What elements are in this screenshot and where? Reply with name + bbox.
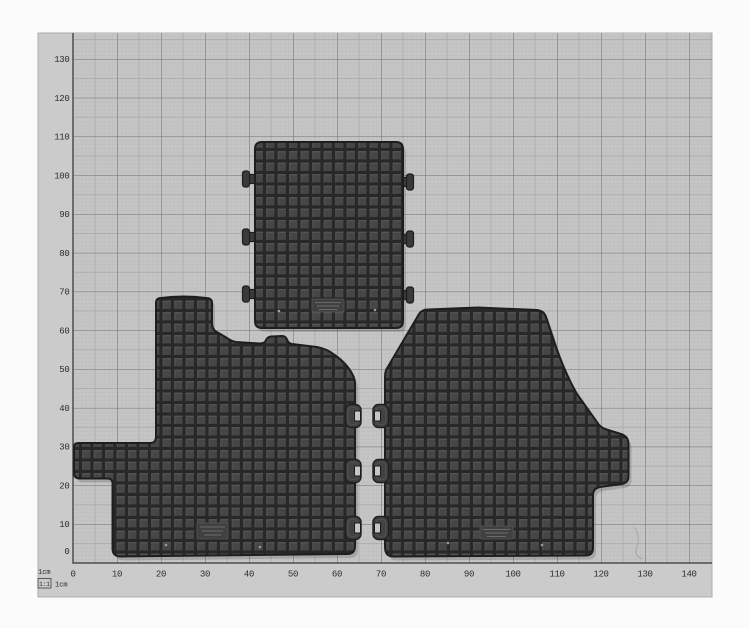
x-tick-label-110: 110 [549,570,564,580]
x-tick-label-10: 10 [112,570,122,580]
mold-dot [447,542,450,545]
y-tick-label-60: 60 [59,326,69,336]
x-tick-label-80: 80 [420,570,430,580]
mold-dot [165,544,168,547]
mold-dot [278,310,281,313]
y-tick-label-80: 80 [59,249,69,259]
passenger-mat-label-plate [480,526,513,539]
scene: 0102030405060708090100110120130140 01020… [0,0,750,628]
x-tick-label-40: 40 [244,570,254,580]
y-tick-label-50: 50 [59,365,69,375]
y-tick-label-10: 10 [59,520,69,530]
y-tick-label-70: 70 [59,288,69,298]
passenger-mat-connector-hooks [373,405,389,540]
mold-dot [259,546,262,549]
x-tick-label-20: 20 [156,570,166,580]
x-tick-label-30: 30 [200,570,210,580]
y-tick-label-40: 40 [59,404,69,414]
driver-mat-connector-hooks [346,405,362,540]
y-tick-label-90: 90 [59,210,69,220]
y-tick-label-0: 0 [64,547,69,557]
center-mat [243,142,414,332]
mold-dot [374,309,377,312]
mold-dot [541,544,544,547]
photo-floor-mats-on-measuring-grid: 0102030405060708090100110120130140 01020… [0,0,750,628]
center-mat-label-plate [312,299,344,312]
y-tick-label-30: 30 [59,443,69,453]
scale-ratio-badge: 1:1 [39,581,50,588]
x-tick-label-120: 120 [593,570,608,580]
x-tick-label-100: 100 [505,570,520,580]
scale-legend-unit: 1cm [55,582,68,590]
x-axis-tick-labels: 0102030405060708090100110120130140 [70,570,696,580]
x-tick-label-60: 60 [332,570,342,580]
x-tick-label-70: 70 [376,570,386,580]
y-tick-label-110: 110 [54,133,69,143]
x-tick-label-130: 130 [637,570,652,580]
y-tick-label-120: 120 [54,94,69,104]
x-tick-label-0: 0 [70,570,75,580]
x-tick-label-140: 140 [681,570,696,580]
x-tick-label-50: 50 [288,570,298,580]
y-tick-label-130: 130 [54,55,69,65]
y-tick-label-100: 100 [54,171,69,181]
scale-legend-line1: 1cm [38,569,51,577]
y-tick-label-20: 20 [59,481,69,491]
driver-mat-label-plate [197,523,228,539]
x-tick-label-90: 90 [464,570,474,580]
